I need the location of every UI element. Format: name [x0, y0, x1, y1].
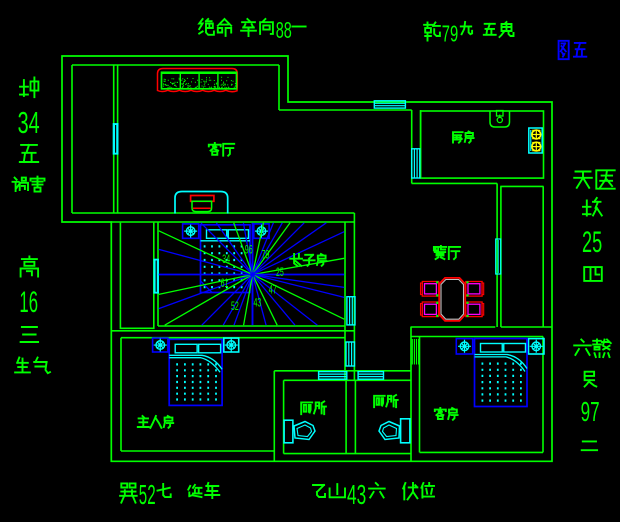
svg-text:43: 43	[254, 297, 262, 311]
svg-text:25: 25	[582, 226, 602, 259]
svg-text:97: 97	[581, 396, 600, 427]
svg-text:52: 52	[139, 479, 156, 510]
svg-text:96: 96	[245, 244, 253, 258]
svg-text:34: 34	[222, 253, 230, 267]
svg-text:16: 16	[19, 286, 38, 319]
svg-text:79: 79	[262, 249, 270, 263]
svg-text:34: 34	[18, 107, 40, 140]
svg-text:52: 52	[231, 300, 239, 314]
svg-text:47: 47	[269, 284, 277, 298]
svg-text:25: 25	[276, 266, 284, 280]
svg-text:43: 43	[347, 479, 366, 510]
svg-text:88: 88	[276, 19, 292, 44]
svg-text:61: 61	[221, 277, 229, 291]
svg-text:79: 79	[442, 22, 458, 47]
